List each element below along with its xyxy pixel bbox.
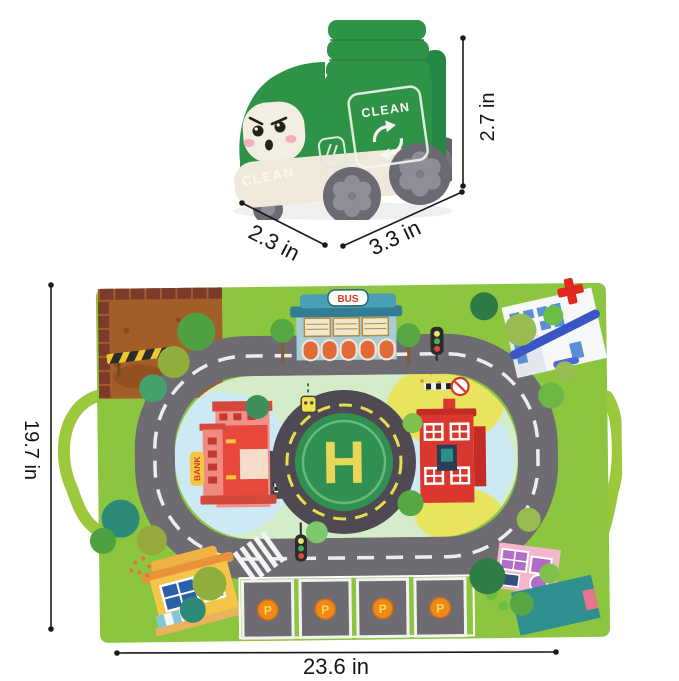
- parking-label: P: [321, 603, 329, 617]
- truck-face: [241, 100, 307, 164]
- bus-station: BUS: [282, 289, 409, 367]
- bus-windows: [304, 317, 388, 336]
- handle-left: [63, 396, 99, 531]
- parking-label: P: [379, 602, 387, 616]
- bus-sign-label: BUS: [337, 294, 359, 305]
- mat-height-label: 19.7 in: [18, 410, 44, 490]
- mat-width-label: 23.6 in: [276, 654, 396, 680]
- bus-seats: [302, 339, 394, 360]
- truck-height-label: 2.7 in: [475, 82, 501, 152]
- helipad-letter: H: [322, 429, 366, 497]
- truck-depth-label: 2.3 in: [232, 213, 315, 272]
- toy-garbage-truck: CLEAN CLEAN: [228, 14, 452, 220]
- parking-spot: P: [357, 579, 408, 637]
- product-dimension-image: CLEAN CLEAN: [0, 0, 679, 681]
- parking-label: P: [264, 603, 272, 617]
- mouth: [265, 140, 273, 151]
- truck-height-line: [460, 35, 466, 189]
- parking-lot: P P P P: [239, 575, 474, 638]
- mat-height-line: [48, 282, 54, 632]
- parking-spot: P: [300, 580, 351, 638]
- bank-sign-label: BANK: [192, 456, 202, 482]
- parking-label: P: [436, 601, 444, 615]
- parking-spot: P: [415, 578, 466, 636]
- truck-wheel-rear: [389, 143, 451, 205]
- play-mat: H BANK: [56, 275, 625, 654]
- parking-spot: P: [242, 581, 293, 639]
